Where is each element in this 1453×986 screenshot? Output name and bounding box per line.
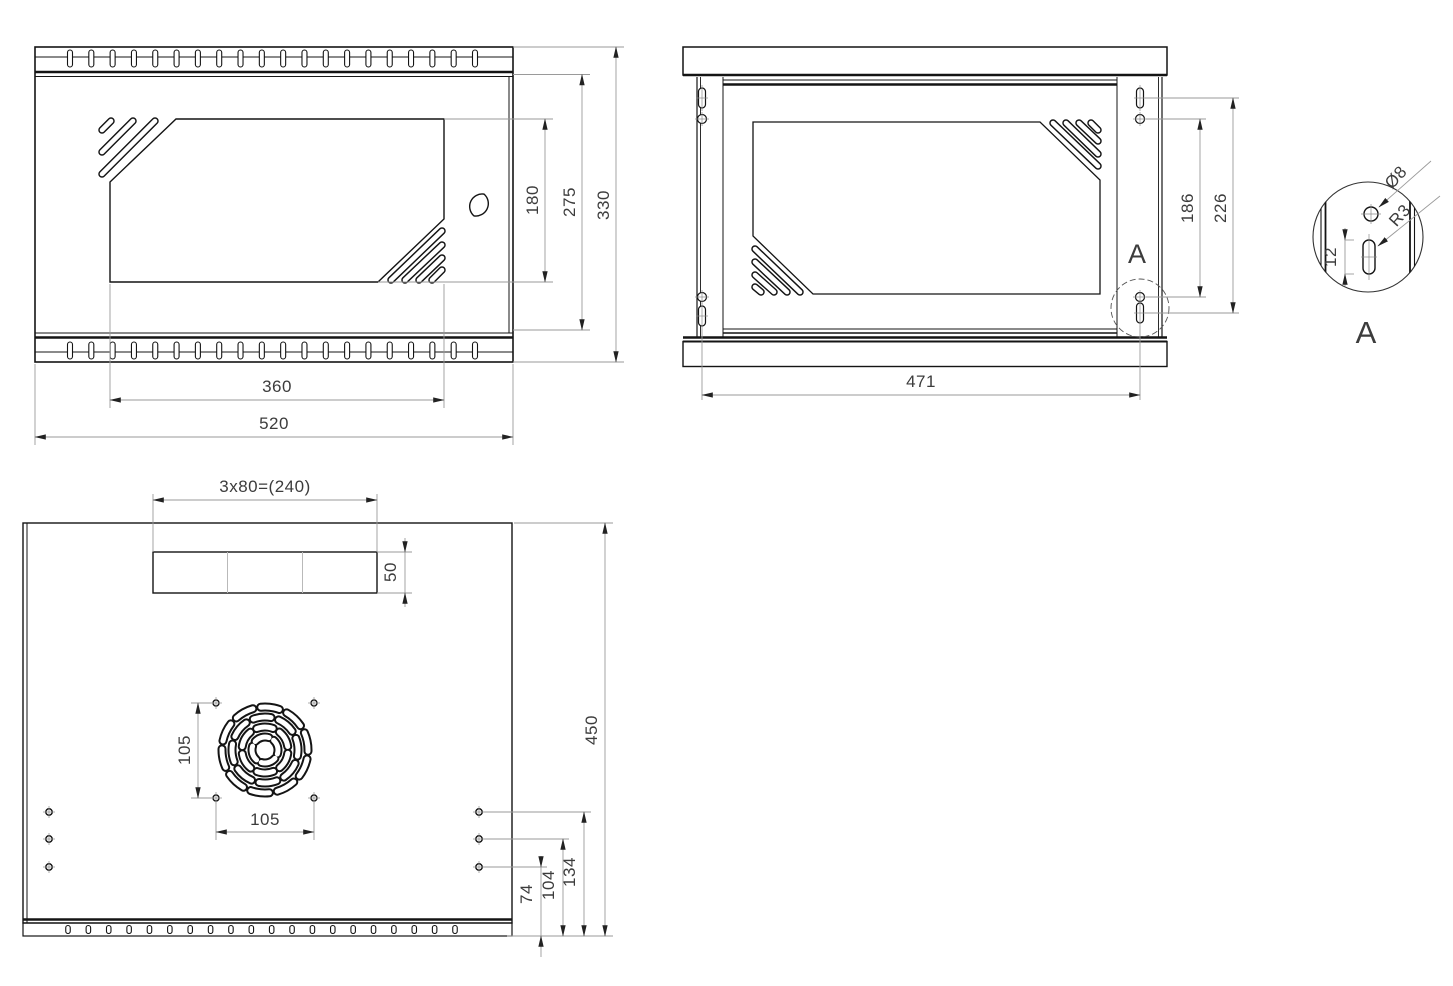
- vent-slot: [174, 50, 179, 67]
- dim-front-window-height: 180: [523, 185, 542, 215]
- dim-cable-cutout-depth: 50: [381, 562, 400, 582]
- dim-fan-spacing-horizontal: 105: [250, 810, 280, 829]
- dim-front-window-width: 360: [262, 377, 292, 396]
- drawing-sheet: 330 275 180 360 520: [0, 0, 1453, 986]
- vent-slot: [259, 342, 264, 359]
- rear-view: A 471 186 226: [683, 47, 1239, 400]
- vent-slot: [345, 50, 350, 67]
- vent-slot: [153, 342, 158, 359]
- vent-slot: [302, 50, 307, 67]
- vent-slot: [153, 50, 158, 67]
- cable-cutout: [153, 552, 377, 593]
- dim-cable-cutout: 3x80=(240): [219, 477, 310, 496]
- vent-slot: [310, 926, 315, 934]
- vent-slot: [110, 50, 115, 67]
- front-bottom-vent-band: [35, 333, 513, 359]
- vent-slot-row-bottom: [68, 342, 478, 359]
- vent-slot: [473, 50, 478, 67]
- vent-slot: [290, 926, 295, 934]
- lip-slot-row: [66, 926, 458, 934]
- vent-slot: [281, 342, 286, 359]
- vent-slot: [168, 926, 173, 934]
- vent-slot: [345, 342, 350, 359]
- vent-slot: [409, 342, 414, 359]
- vent-slot: [269, 926, 274, 934]
- dim-overall-depth: 450: [582, 715, 601, 745]
- dim-front-overall-width: 520: [259, 414, 289, 433]
- detail-rail-edges: [1321, 180, 1415, 294]
- vent-slot: [238, 50, 243, 67]
- dim-rear-mounting-width: 471: [906, 372, 936, 391]
- front-cabinet-outline: [35, 47, 513, 362]
- fan-grille: [210, 697, 320, 804]
- front-dimensions: 330 275 180 360 520: [35, 47, 624, 445]
- dim-rear-slot-spacing: 226: [1211, 193, 1230, 223]
- rear-body: [697, 77, 1162, 337]
- vent-slot: [432, 926, 437, 934]
- detail-a-label: A: [1356, 315, 1377, 350]
- vent-slot: [86, 926, 91, 934]
- vent-slot: [387, 50, 392, 67]
- dim-rear-hole-spacing: 186: [1178, 193, 1197, 223]
- vent-slot: [302, 342, 307, 359]
- detail-a-view: 12 Ø8 R3 A: [1313, 161, 1440, 350]
- rear-panel: [753, 122, 1100, 294]
- front-window-vents-bottom-right: [391, 231, 442, 280]
- detail-marker-label: A: [1128, 239, 1146, 269]
- dim-front-overall-height: 330: [594, 190, 613, 220]
- vent-slot: [217, 342, 222, 359]
- vent-slot: [366, 342, 371, 359]
- vent-slot: [451, 50, 456, 67]
- vent-slot: [110, 342, 115, 359]
- dim-detail-hole-diameter: Ø8: [1381, 162, 1411, 192]
- vent-slot: [430, 50, 435, 67]
- vent-slot: [195, 50, 200, 67]
- vent-slot: [323, 342, 328, 359]
- vent-slot: [249, 926, 254, 934]
- vent-slot: [351, 926, 356, 934]
- vent-slot: [89, 342, 94, 359]
- vent-slot: [366, 50, 371, 67]
- top-front-lip: [23, 923, 512, 936]
- vent-slot: [131, 50, 136, 67]
- top-view: 3x80=(240) 50 105 105 74: [23, 477, 613, 957]
- dim-fan-spacing-vertical: 105: [175, 735, 194, 765]
- door-lock: [466, 190, 492, 219]
- vent-slot: [430, 342, 435, 359]
- dim-side-hole-3: 134: [560, 857, 579, 887]
- rear-panel-vents-bottom-left: [755, 249, 800, 292]
- vent-slot: [259, 50, 264, 67]
- front-top-vent-band: [35, 50, 513, 77]
- rear-panel-vents-top-right: [1053, 123, 1098, 166]
- vent-slot-row-top: [68, 50, 478, 67]
- vent-slot: [208, 926, 213, 934]
- vent-slot: [195, 342, 200, 359]
- vent-slot: [127, 926, 132, 934]
- vent-slot: [238, 342, 243, 359]
- front-view: 330 275 180 360 520: [35, 47, 624, 445]
- vent-slot: [371, 926, 376, 934]
- vent-slot: [323, 50, 328, 67]
- detail-bubble: [1313, 182, 1423, 292]
- vent-slot: [174, 342, 179, 359]
- front-door-window: [110, 119, 444, 282]
- vent-slot: [89, 50, 94, 67]
- vent-slot: [147, 926, 152, 934]
- vent-slot: [217, 50, 222, 67]
- vent-slot: [106, 926, 111, 934]
- dim-side-hole-1: 74: [517, 884, 536, 904]
- detail-dimensions: 12 Ø8 R3: [1321, 161, 1440, 286]
- vent-slot: [131, 342, 136, 359]
- vent-slot: [331, 926, 336, 934]
- vent-slot: [412, 926, 417, 934]
- rear-bottom-band: [683, 338, 1167, 367]
- vent-slot: [392, 926, 397, 934]
- vent-slot: [451, 342, 456, 359]
- dim-detail-slot-height: 12: [1321, 247, 1340, 267]
- dim-front-body-height: 275: [560, 187, 579, 217]
- vent-slot: [229, 926, 234, 934]
- rear-top-band: [683, 47, 1167, 75]
- vent-slot: [409, 50, 414, 67]
- vent-slot: [68, 50, 73, 67]
- top-dimensions: 3x80=(240) 50 105 105 74: [153, 477, 613, 957]
- engineering-drawing: 330 275 180 360 520: [0, 0, 1453, 986]
- vent-slot: [473, 342, 478, 359]
- vent-slot: [281, 50, 286, 67]
- vent-slot: [188, 926, 193, 934]
- vent-slot: [387, 342, 392, 359]
- vent-slot: [66, 926, 71, 934]
- vent-slot: [68, 342, 73, 359]
- dim-side-hole-2: 104: [539, 870, 558, 900]
- vent-slot: [453, 926, 458, 934]
